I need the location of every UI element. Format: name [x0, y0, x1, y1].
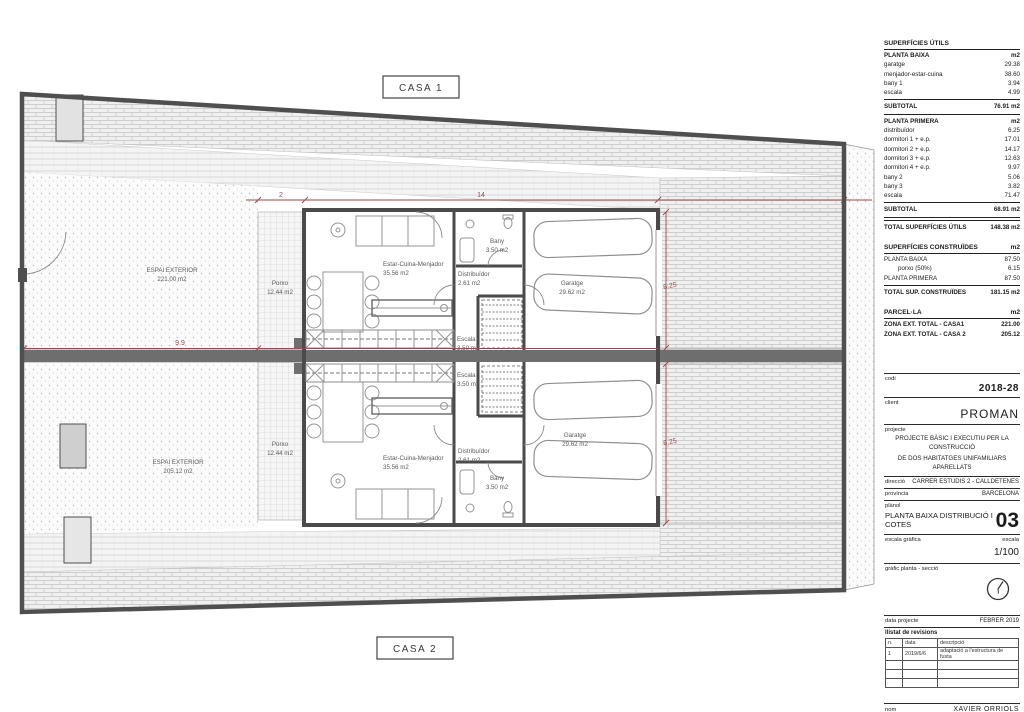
bany-2-area: 3.50 m2 — [486, 484, 509, 491]
dim-exterior-width: 9.9 — [175, 340, 185, 347]
garatge-2-name: Garatge — [564, 432, 587, 439]
porxo-1-name: Porxo — [272, 280, 289, 287]
table-row: garatge29.38 — [884, 60, 1020, 69]
rev-col-data: data — [903, 638, 938, 647]
table-row: bany 33.82 — [884, 182, 1020, 191]
revisions-title: llistat de revisions — [885, 630, 1019, 636]
data-projecte-label: data projecte — [885, 618, 919, 624]
provincia-value: BARCELONA — [982, 491, 1019, 497]
porxo-2-area: 12.44 m2 — [267, 450, 293, 457]
surfaces-utils-table: SUPERFÍCIES ÚTILS PLANTA BAIXAm2 garatge… — [884, 40, 1020, 232]
codi-value: 2018-28 — [885, 383, 1019, 394]
floor-plan-drawing: ESPAI EXTERIOR 221.00 m2 ESPAI EXTERIOR … — [0, 0, 880, 712]
bany-1-area: 3.50 m2 — [486, 247, 509, 254]
planol-label: plànol — [885, 503, 1019, 509]
estar-1-name: Estar-Cuina-Menjador — [383, 261, 444, 268]
direccio-value: CARRER ESTUDIS 2 - CALLDETENES — [912, 479, 1019, 485]
revision-row: 1 2019/6/6 adaptació a l'estructura de f… — [886, 647, 1019, 660]
planol-number: 03 — [996, 512, 1019, 531]
table-row: distribuïdor6.25 — [884, 126, 1020, 135]
direccio-label: direcció — [885, 479, 905, 485]
grafic-block: gràfic planta - secció — [884, 563, 1020, 615]
distribuidor-2-name: Distribuïdor — [458, 448, 490, 455]
table-row: porxo (50%)6.15 — [884, 264, 1020, 273]
porxo-areas — [258, 212, 305, 520]
subtotal-row: SUBTOTAL76.91 m2 — [884, 99, 1020, 114]
revisions-table: n. data descripció 1 2019/6/6 adaptació … — [885, 638, 1019, 688]
escala-label: escala — [1002, 537, 1019, 543]
garatge-1-area: 29.62 m2 — [559, 289, 585, 296]
estar-2-name: Estar-Cuina-Menjador — [383, 455, 444, 462]
distribuidor-1-name: Distribuïdor — [458, 271, 490, 278]
escala-value: 1/100 — [885, 547, 1019, 560]
title-block: SUPERFÍCIES ÚTILS PLANTA BAIXAm2 garatge… — [884, 40, 1020, 712]
nom-arquitecte-label: nom arquitecte — [885, 707, 921, 712]
bany-2-name: Bany — [490, 475, 505, 482]
parcella-title: PARCEL·LA — [884, 309, 922, 316]
garatge-1-name: Garatge — [561, 280, 584, 287]
table-row: dormitori 3 + e.p.12.63 — [884, 154, 1020, 163]
surfaces-constructed-table: SUPERFÍCIES CONSTRUÏDESm2 PLANTA BAIXA87… — [884, 244, 1020, 297]
distribuidor-2-area: 2.61 m2 — [458, 457, 481, 464]
table-row: PLANTA BAIXA87.50 — [884, 255, 1020, 264]
table-row: ZONA EXT. TOTAL - CASA1221.00 — [884, 320, 1020, 329]
planol-block: plànol PLANTA BAIXA DISTRIBUCIÓ I COTES … — [884, 500, 1020, 534]
parcel-table: PARCEL·LAm2 ZONA EXT. TOTAL - CASA1221.0… — [884, 309, 1020, 339]
table-row: bany 25.06 — [884, 173, 1020, 182]
dim-porxo-width: 2 — [279, 192, 283, 199]
nom-arquitecte-block: nom arquitecte XAVIER ORRIOLS JANSANA — [884, 703, 1020, 712]
table-row: dormitori 4 + e.p.9.97 — [884, 163, 1020, 172]
casa1-label: CASA 1 — [399, 83, 443, 94]
projecte-label: projecte — [885, 427, 1019, 433]
table-row: bany 13.94 — [884, 79, 1020, 88]
orientation-circle-icon — [985, 576, 1011, 602]
table-row: dormitori 2 + e.p.14.17 — [884, 145, 1020, 154]
grafic-label: gràfic planta - secció — [885, 566, 1019, 572]
provincia-block: província BARCELONA — [884, 488, 1020, 500]
codi-block: codi 2018-28 — [884, 373, 1020, 397]
revisions-block: llistat de revisions n. data descripció … — [884, 627, 1020, 691]
porxo-2-name: Porxo — [272, 441, 289, 448]
building-fill — [304, 210, 658, 525]
espai-exterior-1-area: 221.00 m2 — [157, 276, 187, 283]
client-label: client — [885, 400, 1019, 406]
revision-row-empty — [886, 660, 1019, 669]
estar-2-area: 35.56 m2 — [383, 464, 409, 471]
table-row: escala71.47 — [884, 191, 1020, 200]
espai-exterior-1-name: ESPAI EXTERIOR — [146, 267, 198, 274]
projecte-line1: PROJECTE BÀSIC I EXECUTIU PER LA CONSTRU… — [885, 435, 1019, 453]
revision-row-empty — [886, 669, 1019, 678]
escala-1-name: Escala — [457, 336, 476, 343]
revision-row-empty — [886, 678, 1019, 687]
espai-exterior-2-area: 205.12 m2 — [163, 468, 193, 475]
casa2-label: CASA 2 — [393, 644, 437, 655]
table-row: menjador-estar-cuina38.60 — [884, 70, 1020, 79]
total-row: TOTAL SUPERFÍCIES ÚTILS148.38 m2 — [884, 220, 1020, 232]
client-block: client PROMAN — [884, 397, 1020, 424]
codi-label: codi — [885, 376, 1019, 382]
table-row: escala4.99 — [884, 88, 1020, 97]
escala-block: escala gràfica escala 1/100 — [884, 534, 1020, 563]
estar-1-area: 35.56 m2 — [383, 270, 409, 277]
table-row: PLANTA PRIMERA87.50 — [884, 274, 1020, 283]
porxo-1-area: 12.44 m2 — [267, 289, 293, 296]
data-projecte-block: data projecte FEBRER 2019 — [884, 615, 1020, 627]
total-row: TOTAL SUP. CONSTRUÏDES181.15 m2 — [884, 285, 1020, 297]
escala-grafica-label: escala gràfica — [885, 537, 921, 543]
table-row: dormitori 1 + e.p.17.01 — [884, 135, 1020, 144]
dim-house-width: 14 — [477, 192, 485, 199]
projecte-line2: DE DOS HABITATGES UNIFAMILIARS APARELLAT… — [885, 455, 1019, 473]
utils-title: SUPERFÍCIES ÚTILS — [884, 40, 949, 47]
projecte-block: projecte PROJECTE BÀSIC I EXECUTIU PER L… — [884, 424, 1020, 476]
table-row: ZONA EXT. TOTAL - CASA 2205.12 — [884, 330, 1020, 339]
escala-2-area: 3.50 m2 — [457, 381, 480, 388]
espai-exterior-2-name: ESPAI EXTERIOR — [152, 459, 204, 466]
garatge-2-area: 29.62 m2 — [562, 441, 588, 448]
bany-1-name: Bany — [490, 238, 505, 245]
planol-title: PLANTA BAIXA DISTRIBUCIÓ I COTES — [885, 512, 994, 529]
rev-col-n: n. — [886, 638, 903, 647]
drawing-sheet: ESPAI EXTERIOR 221.00 m2 ESPAI EXTERIOR … — [0, 0, 1024, 712]
provincia-label: província — [885, 491, 909, 497]
rev-col-desc: descripció — [938, 638, 1019, 647]
client-value: PROMAN — [885, 407, 1019, 421]
party-wall-core — [22, 350, 844, 362]
subtotal-row: SUBTOTAL68.91 m2 — [884, 202, 1020, 217]
nom-arquitecte-value: XAVIER ORRIOLS JANSANA — [921, 706, 1019, 712]
construides-title: SUPERFÍCIES CONSTRUÏDES — [884, 244, 978, 251]
data-projecte-value: FEBRER 2019 — [980, 618, 1019, 624]
distribuidor-1-area: 2.61 m2 — [458, 280, 481, 287]
direccio-block: direcció CARRER ESTUDIS 2 - CALLDETENES — [884, 476, 1020, 488]
escala-2-name: Escala — [457, 372, 476, 379]
